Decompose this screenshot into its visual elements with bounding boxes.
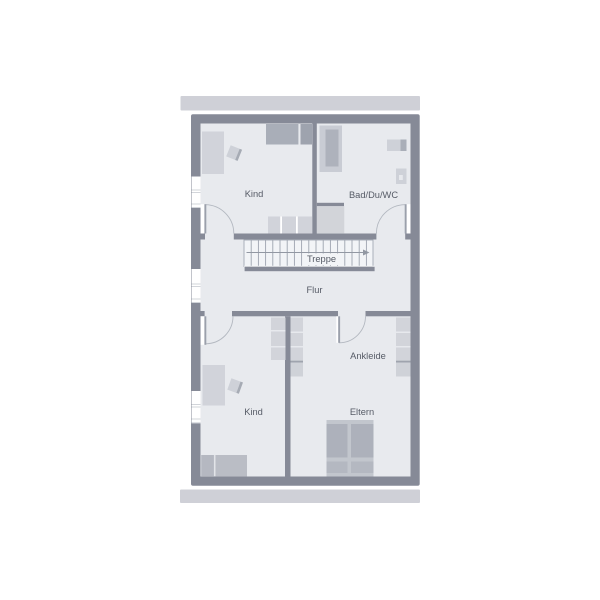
svg-text:Kind: Kind: [245, 189, 264, 199]
svg-text:Flur: Flur: [306, 285, 322, 295]
svg-text:Treppe: Treppe: [307, 254, 336, 264]
svg-text:Kind: Kind: [244, 407, 263, 417]
svg-text:Bad/Du/WC: Bad/Du/WC: [349, 190, 398, 200]
svg-text:Ankleide: Ankleide: [350, 351, 386, 361]
svg-text:Eltern: Eltern: [350, 407, 374, 417]
